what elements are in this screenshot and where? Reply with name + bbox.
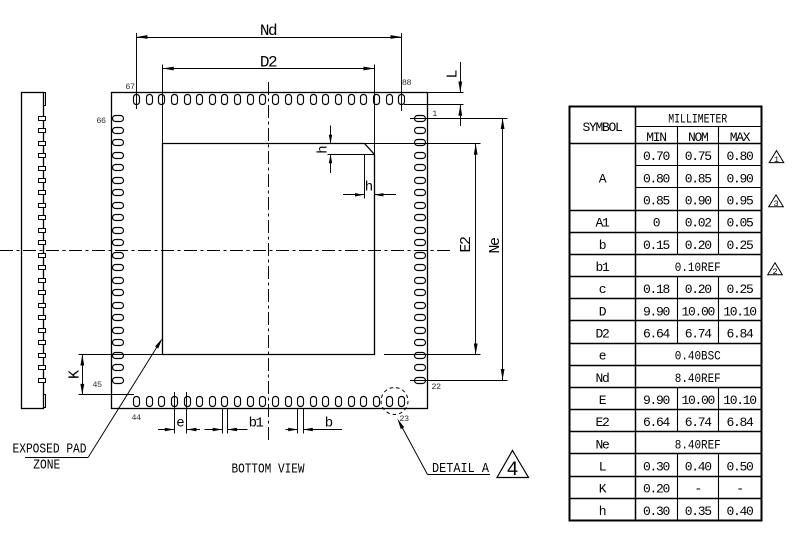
svg-text:10.10: 10.10 bbox=[723, 393, 756, 408]
svg-text:0.18: 0.18 bbox=[643, 282, 670, 297]
svg-text:66: 66 bbox=[96, 116, 106, 126]
svg-text:1: 1 bbox=[774, 155, 779, 165]
svg-text:2: 2 bbox=[772, 267, 777, 277]
svg-text:h: h bbox=[599, 504, 606, 519]
svg-text:8.40REF: 8.40REF bbox=[675, 371, 721, 386]
svg-text:6.74: 6.74 bbox=[685, 415, 713, 430]
svg-text:MAX: MAX bbox=[730, 130, 751, 145]
svg-text:BOTTOM VIEW: BOTTOM VIEW bbox=[232, 462, 305, 478]
svg-text:23: 23 bbox=[399, 414, 409, 424]
svg-text:22: 22 bbox=[431, 382, 441, 392]
svg-text:0.40: 0.40 bbox=[685, 460, 712, 475]
svg-text:0.40BSC: 0.40BSC bbox=[675, 349, 721, 364]
svg-text:MIN: MIN bbox=[646, 130, 666, 145]
svg-text:MILLIMETER: MILLIMETER bbox=[668, 112, 727, 127]
svg-text:88: 88 bbox=[402, 78, 412, 88]
svg-text:-: - bbox=[694, 482, 701, 497]
svg-text:0.10REF: 0.10REF bbox=[675, 260, 721, 275]
svg-text:0.40: 0.40 bbox=[726, 504, 753, 519]
svg-text:Nd: Nd bbox=[595, 371, 609, 386]
svg-text:3: 3 bbox=[773, 199, 778, 209]
svg-text:0.95: 0.95 bbox=[726, 193, 753, 208]
svg-text:10.10: 10.10 bbox=[723, 304, 756, 319]
svg-text:b1: b1 bbox=[595, 260, 610, 275]
svg-text:0.30: 0.30 bbox=[643, 460, 670, 475]
svg-text:6.84: 6.84 bbox=[726, 415, 754, 430]
svg-text:e: e bbox=[176, 416, 184, 432]
svg-text:0.80: 0.80 bbox=[643, 171, 670, 186]
svg-text:c: c bbox=[599, 282, 606, 297]
svg-text:0.02: 0.02 bbox=[685, 216, 712, 231]
svg-text:L: L bbox=[445, 69, 462, 78]
svg-text:h: h bbox=[316, 145, 332, 153]
svg-text:0.05: 0.05 bbox=[726, 216, 753, 231]
svg-text:6.64: 6.64 bbox=[643, 327, 671, 342]
svg-text:4: 4 bbox=[506, 459, 518, 482]
svg-text:9.90: 9.90 bbox=[643, 393, 670, 408]
svg-text:1: 1 bbox=[432, 109, 437, 119]
svg-text:b: b bbox=[599, 238, 606, 253]
svg-text:9.90: 9.90 bbox=[643, 304, 670, 319]
svg-text:0.90: 0.90 bbox=[726, 171, 753, 186]
svg-text:8.40REF: 8.40REF bbox=[675, 437, 721, 452]
svg-text:SYMBOL: SYMBOL bbox=[582, 120, 622, 135]
svg-text:10.00: 10.00 bbox=[681, 393, 714, 408]
svg-text:0.85: 0.85 bbox=[643, 193, 670, 208]
svg-text:44: 44 bbox=[131, 413, 141, 423]
svg-text:E2: E2 bbox=[595, 415, 609, 430]
svg-text:0.20: 0.20 bbox=[685, 238, 712, 253]
svg-text:67: 67 bbox=[125, 82, 135, 92]
svg-text:Ne: Ne bbox=[595, 437, 609, 452]
svg-text:E2: E2 bbox=[458, 237, 475, 253]
svg-text:6.64: 6.64 bbox=[643, 415, 671, 430]
svg-text:0.70: 0.70 bbox=[643, 149, 670, 164]
svg-text:0.20: 0.20 bbox=[685, 282, 712, 297]
svg-text:6.74: 6.74 bbox=[685, 327, 713, 342]
svg-text:0.80: 0.80 bbox=[726, 149, 753, 164]
svg-text:e: e bbox=[599, 349, 606, 364]
svg-text:DETAIL A: DETAIL A bbox=[432, 461, 490, 477]
svg-text:10.00: 10.00 bbox=[681, 304, 714, 319]
svg-text:A1: A1 bbox=[595, 216, 610, 231]
svg-text:b: b bbox=[325, 416, 333, 432]
svg-text:0.85: 0.85 bbox=[685, 171, 712, 186]
svg-text:Ne: Ne bbox=[487, 237, 504, 254]
svg-text:0.75: 0.75 bbox=[685, 149, 712, 164]
svg-text:0.25: 0.25 bbox=[726, 238, 753, 253]
svg-text:0.20: 0.20 bbox=[643, 482, 670, 497]
svg-text:45: 45 bbox=[92, 380, 102, 390]
svg-text:D2: D2 bbox=[260, 54, 277, 72]
svg-text:0.90: 0.90 bbox=[685, 193, 712, 208]
svg-text:6.84: 6.84 bbox=[726, 327, 754, 342]
svg-text:0.15: 0.15 bbox=[643, 238, 670, 253]
svg-text:0.35: 0.35 bbox=[685, 504, 712, 519]
svg-text:0.30: 0.30 bbox=[643, 504, 670, 519]
svg-text:K: K bbox=[67, 370, 84, 379]
svg-text:ZONE: ZONE bbox=[33, 458, 60, 474]
svg-text:b1: b1 bbox=[249, 416, 264, 432]
svg-text:-: - bbox=[736, 482, 743, 497]
svg-text:L: L bbox=[599, 460, 606, 475]
svg-text:NOM: NOM bbox=[688, 130, 708, 145]
svg-text:0: 0 bbox=[653, 216, 660, 231]
svg-text:0.25: 0.25 bbox=[726, 282, 753, 297]
svg-text:h: h bbox=[365, 180, 373, 196]
svg-text:Nd: Nd bbox=[260, 22, 277, 40]
svg-text:0.50: 0.50 bbox=[726, 460, 753, 475]
svg-text:D2: D2 bbox=[595, 327, 609, 342]
svg-text:EXPOSED PAD: EXPOSED PAD bbox=[13, 442, 87, 458]
